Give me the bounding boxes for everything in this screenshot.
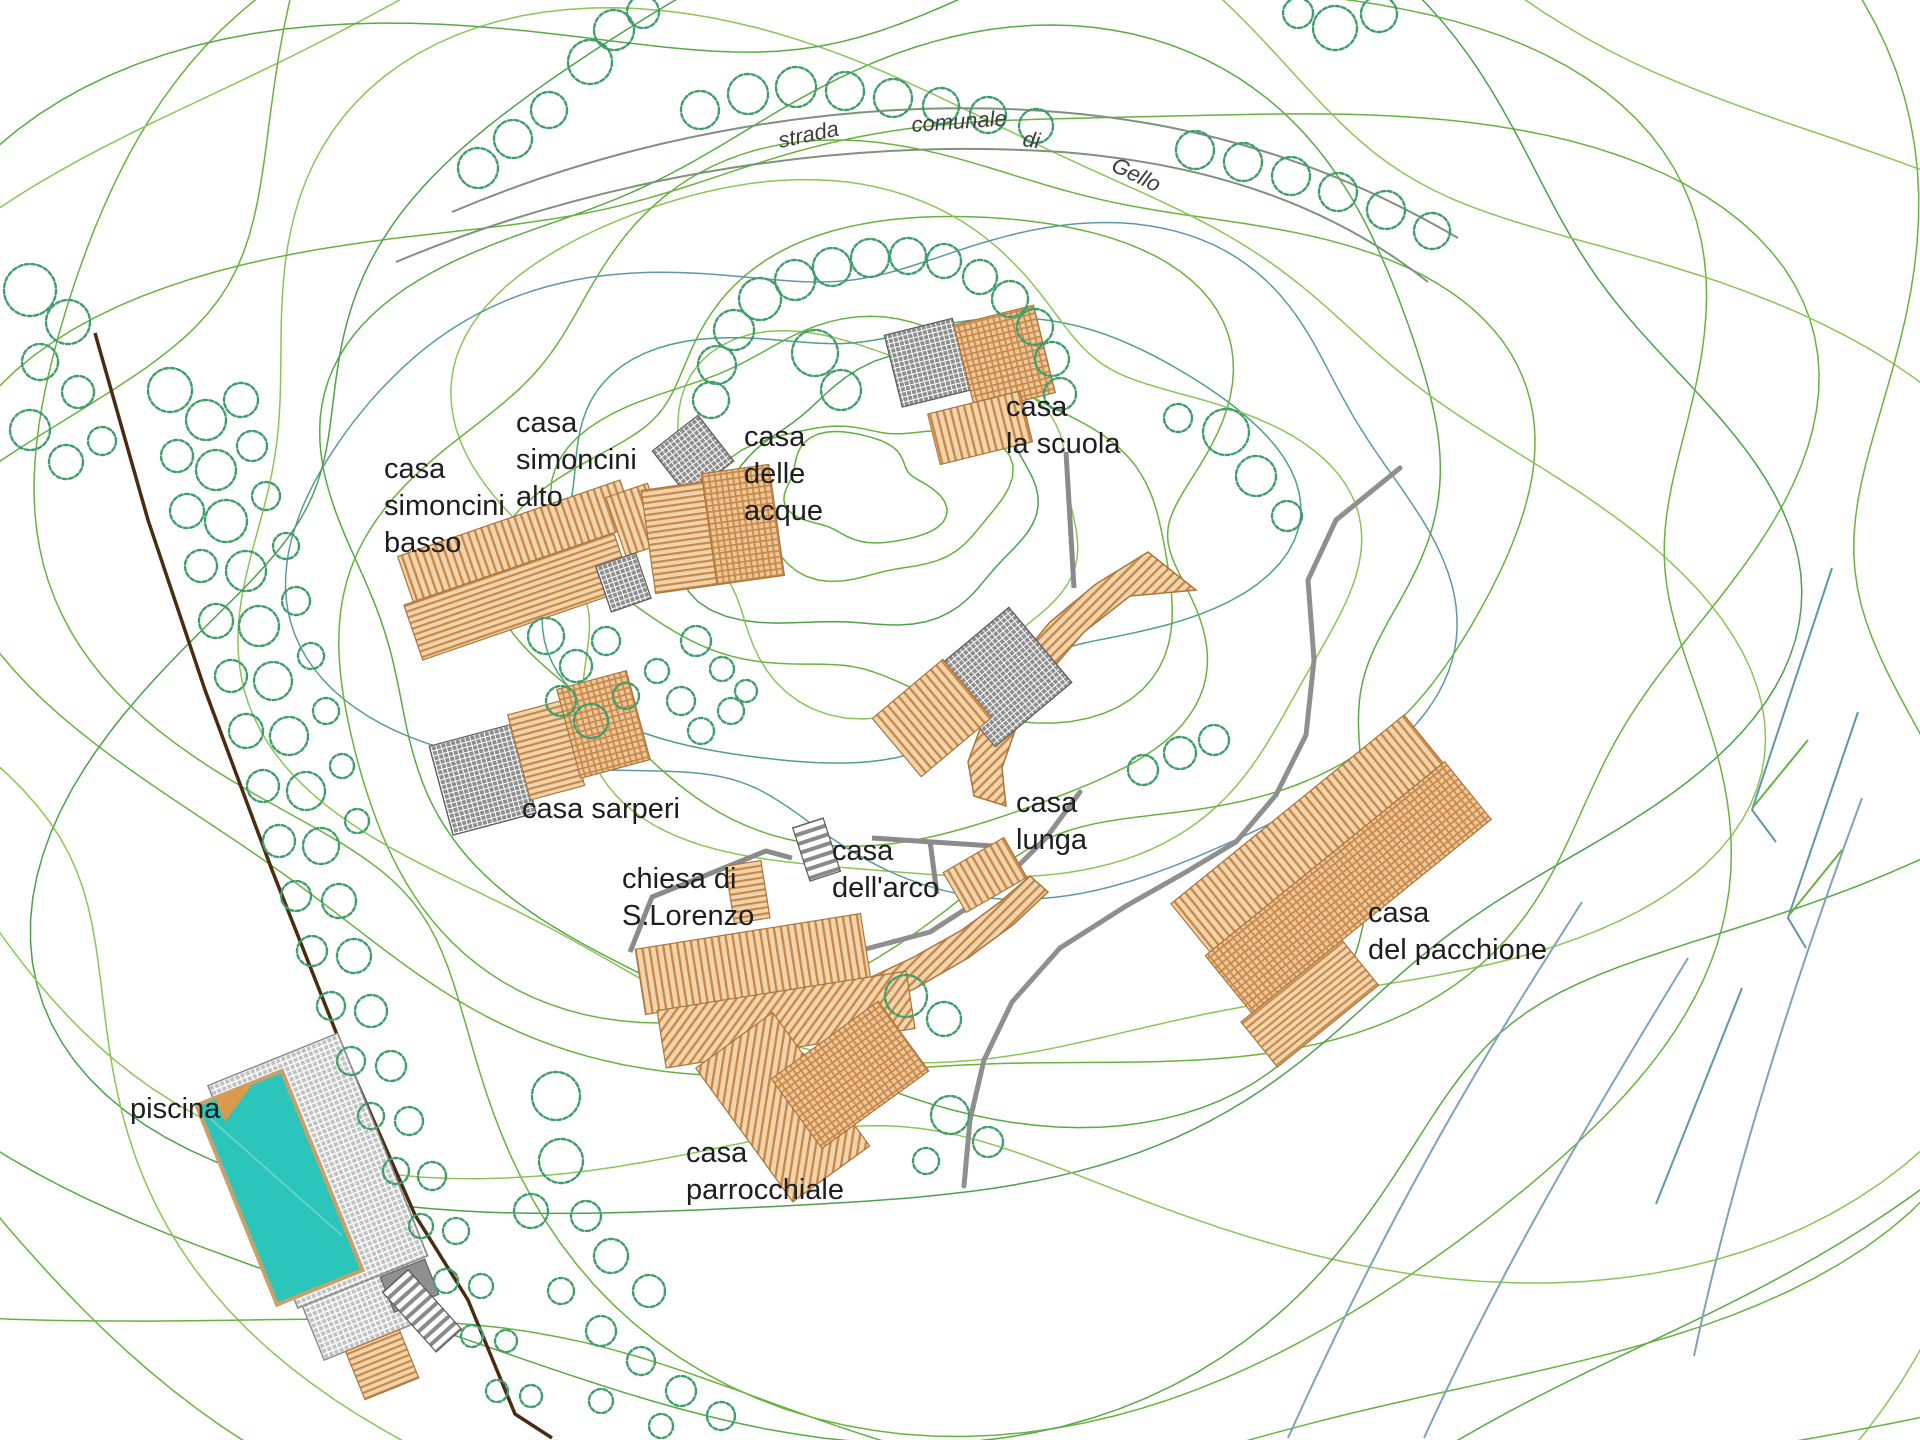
tree-icon xyxy=(1199,725,1229,755)
tree-icon xyxy=(1203,409,1249,455)
label-line: simoncini xyxy=(516,444,637,476)
tree-icon xyxy=(313,698,339,724)
label-line: la scuola xyxy=(1006,428,1121,460)
label-line: casa xyxy=(384,453,446,485)
contour-spur xyxy=(1790,850,1842,914)
tree-icon xyxy=(1272,501,1302,531)
road-label-word: di xyxy=(1021,126,1043,153)
tree-icon xyxy=(592,627,620,655)
tree-icon xyxy=(185,550,217,582)
label-line: casa xyxy=(1006,391,1068,423)
tree-icon xyxy=(395,1107,423,1135)
tree-icon xyxy=(792,330,838,376)
tree-icon xyxy=(560,650,592,682)
tree-icon xyxy=(589,1389,613,1413)
site-plan-canvas: casasimoncinibassocasasimoncinialtocasad… xyxy=(0,0,1920,1440)
tree-icon xyxy=(1164,737,1196,769)
tree-icon xyxy=(821,370,861,410)
tree-icon xyxy=(376,1051,406,1081)
tree-icon xyxy=(4,264,56,316)
tree-icon xyxy=(495,1330,517,1352)
tree-icon xyxy=(337,939,371,973)
parcel-curve xyxy=(1424,958,1688,1438)
tree-icon xyxy=(1313,6,1357,50)
tree-icon xyxy=(666,1376,696,1406)
tree-icon xyxy=(62,376,94,408)
tree-icon xyxy=(681,91,719,129)
label-line: casa xyxy=(832,835,894,867)
building-piscina-complex xyxy=(191,1033,469,1417)
label-line: casa xyxy=(744,421,806,453)
tree-icon xyxy=(532,1072,580,1120)
label-line: lunga xyxy=(1016,824,1088,856)
parcel-line xyxy=(1788,712,1858,948)
tree-icon xyxy=(1272,157,1310,195)
tree-icon xyxy=(1164,404,1192,432)
label-line: casa xyxy=(1368,897,1430,929)
tree-icon xyxy=(735,680,757,702)
tree-icon xyxy=(913,1148,939,1174)
label-casa-lunga: casalunga xyxy=(1016,787,1088,856)
tree-icon xyxy=(688,718,714,744)
contour-line xyxy=(31,0,1802,1213)
tree-icon xyxy=(813,248,851,286)
tree-icon xyxy=(287,772,325,810)
tree-icon xyxy=(698,346,736,384)
parcel-line xyxy=(1656,988,1742,1204)
tree-icon xyxy=(568,40,612,84)
tree-icon xyxy=(627,0,659,28)
building-casa-del-pacchione xyxy=(1155,714,1527,1067)
label-line: chiesa di xyxy=(622,863,736,895)
tree-icon xyxy=(633,1275,665,1307)
label-line: S.Lorenzo xyxy=(622,900,754,932)
label-line: alto xyxy=(516,481,563,513)
tree-icon xyxy=(49,445,83,479)
label-line: basso xyxy=(384,527,461,559)
trees-layer xyxy=(4,0,1450,1438)
tree-icon xyxy=(322,884,356,918)
tree-icon xyxy=(205,500,247,542)
tree-icon xyxy=(927,1002,961,1036)
tree-icon xyxy=(297,936,327,966)
tree-icon xyxy=(1128,755,1158,785)
label-line: dell'arco xyxy=(832,872,939,904)
tree-icon xyxy=(330,754,354,778)
tree-icon xyxy=(667,687,695,715)
tree-icon xyxy=(707,1402,735,1430)
tree-icon xyxy=(728,74,768,114)
parcel-lines-layer xyxy=(1288,568,1862,1438)
tree-icon xyxy=(239,606,279,646)
label-line: del pacchione xyxy=(1368,934,1547,966)
label-line: acque xyxy=(744,495,823,527)
contour-line xyxy=(0,114,1819,1077)
tree-icon xyxy=(514,1194,548,1228)
tree-icon xyxy=(973,1127,1003,1157)
tree-icon xyxy=(963,260,997,294)
tree-icon xyxy=(890,238,926,274)
tree-icon xyxy=(461,1325,483,1347)
label-line: delle xyxy=(744,458,805,490)
tree-icon xyxy=(254,662,292,700)
tree-icon xyxy=(186,400,226,440)
tree-icon xyxy=(710,657,734,681)
label-casa-sarperi: casa sarperi xyxy=(522,793,680,825)
tree-icon xyxy=(1236,456,1276,496)
tree-icon xyxy=(247,770,279,802)
tree-icon xyxy=(469,1274,493,1298)
tree-icon xyxy=(170,494,204,528)
tree-icon xyxy=(645,659,669,683)
tree-icon xyxy=(161,440,193,472)
tree-icon xyxy=(826,72,864,110)
tree-icon xyxy=(196,450,236,490)
label-line: casa sarperi xyxy=(522,793,680,825)
tree-icon xyxy=(693,382,729,418)
tree-icon xyxy=(458,148,498,188)
tree-icon xyxy=(718,698,744,724)
tree-icon xyxy=(1224,143,1262,181)
tree-icon xyxy=(199,604,233,638)
tree-icon xyxy=(681,626,711,656)
label-line: piscina xyxy=(130,1093,221,1125)
label-line: simoncini xyxy=(384,490,505,522)
tree-icon xyxy=(443,1218,469,1244)
tree-icon xyxy=(22,344,58,380)
tree-icon xyxy=(263,825,295,857)
label-line: parrocchiale xyxy=(686,1174,844,1206)
tree-icon xyxy=(874,79,912,117)
tree-icon xyxy=(224,383,258,417)
tree-icon xyxy=(594,1239,628,1273)
tree-icon xyxy=(252,482,280,510)
label-line: casa xyxy=(1016,787,1078,819)
tree-icon xyxy=(273,533,299,559)
tree-icon xyxy=(1367,191,1405,229)
label-piscina: piscina xyxy=(130,1093,221,1125)
tree-icon xyxy=(88,427,116,455)
tree-icon xyxy=(520,1385,542,1407)
tree-icon xyxy=(586,1316,616,1346)
tree-icon xyxy=(649,1414,673,1438)
tree-icon xyxy=(215,660,247,692)
tree-icon xyxy=(270,717,308,755)
label-line: casa xyxy=(516,407,578,439)
tree-icon xyxy=(281,881,311,911)
tree-icon xyxy=(531,92,567,128)
tree-icon xyxy=(494,120,532,158)
tree-icon xyxy=(355,995,387,1027)
tree-icon xyxy=(931,1096,969,1134)
tree-icon xyxy=(548,1278,574,1304)
tree-icon xyxy=(927,244,961,278)
parcel-curve xyxy=(1694,798,1862,1356)
tree-icon xyxy=(418,1162,446,1190)
label-line: casa xyxy=(686,1137,748,1169)
tree-icon xyxy=(229,714,263,748)
tree-icon xyxy=(237,431,267,461)
tree-icon xyxy=(303,828,339,864)
tree-icon xyxy=(148,368,192,412)
tree-icon xyxy=(1176,131,1214,169)
tree-icon xyxy=(539,1139,583,1183)
label-casa-del-pacchione: casadel pacchione xyxy=(1368,897,1547,966)
tree-icon xyxy=(46,300,90,344)
site-plan-map: casasimoncinibassocasasimoncinialtocasad… xyxy=(0,0,1920,1440)
tree-icon xyxy=(851,239,889,277)
courtyard-wall xyxy=(1066,452,1074,588)
tree-icon xyxy=(10,410,50,450)
tree-icon xyxy=(1283,0,1313,28)
tree-icon xyxy=(571,1201,601,1231)
